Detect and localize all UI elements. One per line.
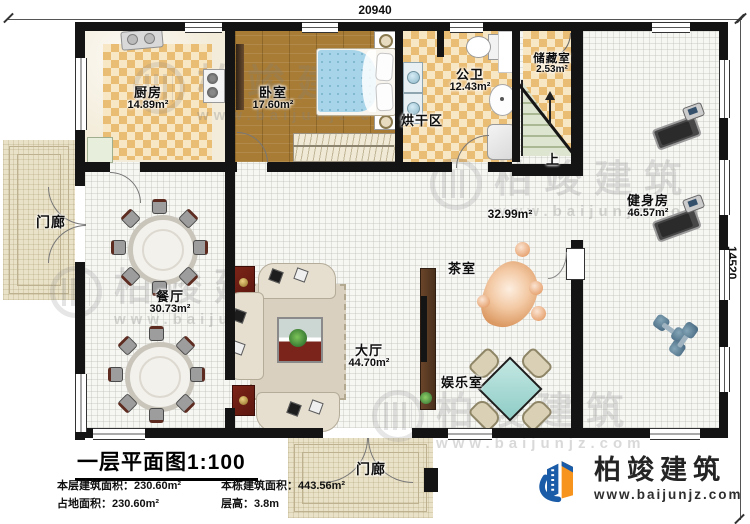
toilet-bowl xyxy=(466,36,491,58)
window xyxy=(652,22,690,33)
kitchen-sink-basin xyxy=(144,33,155,44)
wall-segment xyxy=(412,428,448,438)
bed-sheet-fold xyxy=(362,50,376,112)
stove-burner xyxy=(207,73,218,84)
right-dimension-line xyxy=(740,20,741,520)
bathroom-sink-drain xyxy=(500,97,504,101)
corridor-area-label: 32.99m² xyxy=(478,208,542,221)
wall-segment xyxy=(75,130,85,186)
room-name: 门廊 xyxy=(346,462,396,477)
room-name: 健身房 xyxy=(610,194,686,208)
window xyxy=(719,250,730,300)
nightstand-lamp xyxy=(379,34,393,48)
stairs-direction-line xyxy=(549,99,551,126)
floor-plan-canvas: 20940 14520 柏竣建筑 www.baijunjz.com 柏竣建筑 w… xyxy=(0,0,750,524)
room-label-kitchen: 厨房 14.89m² xyxy=(108,86,188,111)
wall-segment xyxy=(75,22,185,31)
window xyxy=(719,60,730,118)
stove-burner xyxy=(207,87,218,98)
tea-stool xyxy=(529,281,543,295)
room-name: 烘干区 xyxy=(394,114,450,128)
wall-segment xyxy=(225,172,235,380)
wall-segment xyxy=(719,22,728,60)
room-area: 14.89m² xyxy=(108,100,188,112)
room-area: 46.57m² xyxy=(610,208,686,220)
dining-chair xyxy=(149,326,164,341)
room-label-porch-bottom: 门廊 xyxy=(346,462,396,477)
room-name: 卧室 xyxy=(237,86,309,100)
room-area: 17.60m² xyxy=(237,100,309,112)
dining-chair xyxy=(111,240,126,255)
wall-segment xyxy=(719,118,728,160)
wall-segment xyxy=(75,262,85,374)
room-area: 44.70m² xyxy=(336,358,402,370)
window xyxy=(75,374,87,432)
room-area: 12.43m² xyxy=(433,82,507,94)
stat-storey-height: 层高：3.8m xyxy=(221,495,345,511)
stat-floor-area: 本层建筑面积：230.60m² xyxy=(57,477,207,493)
dining-chair xyxy=(108,367,123,382)
window xyxy=(450,22,483,33)
wardrobe xyxy=(293,133,396,162)
wardrobe-rail xyxy=(293,145,394,147)
wall-segment xyxy=(75,22,85,58)
kitchen-cabinet xyxy=(87,137,113,163)
tv-screen xyxy=(421,296,427,362)
top-dimension-line xyxy=(8,19,742,20)
wall-segment xyxy=(267,162,452,172)
window xyxy=(185,22,222,33)
window xyxy=(75,58,87,130)
room-name: 厨房 xyxy=(108,86,188,100)
stairs-direction-arrow xyxy=(545,91,555,100)
wall-segment xyxy=(512,31,520,162)
company-logo-text: 柏竣建筑 www.baijunjz.com xyxy=(594,457,743,502)
washing-machine xyxy=(403,62,423,93)
porch-pillar xyxy=(424,468,438,492)
tea-room-door xyxy=(566,248,585,280)
wall-segment xyxy=(719,392,728,438)
company-name: 柏竣建筑 xyxy=(594,457,743,484)
coffee-table-plant xyxy=(289,329,307,347)
wall-segment xyxy=(492,428,650,438)
dining-chair xyxy=(190,367,205,382)
nightstand-lamp xyxy=(379,115,393,129)
room-label-bathroom: 公卫 12.43m² xyxy=(433,68,507,93)
wall-segment xyxy=(140,162,237,172)
dining-chair xyxy=(152,199,167,214)
wall-segment xyxy=(488,162,512,172)
room-label-gym: 健身房 46.57m² xyxy=(610,194,686,219)
wall-segment xyxy=(222,22,302,31)
wall-segment xyxy=(719,300,728,347)
room-name: 大厅 xyxy=(336,344,402,358)
stairs-up-label: 上 xyxy=(542,153,564,167)
room-label-storage: 储藏室 2.53m² xyxy=(518,53,586,76)
stat-building-area: 本栋建筑面积：443.56m² xyxy=(221,477,345,493)
dining-chair xyxy=(193,240,208,255)
room-name: 公卫 xyxy=(433,68,507,82)
window xyxy=(448,428,492,440)
dining-set xyxy=(110,197,206,293)
room-label-game: 娱乐室 xyxy=(432,376,492,390)
window xyxy=(719,347,730,392)
tea-stool xyxy=(515,242,530,257)
wall-segment xyxy=(437,31,444,57)
top-dimension-label: 20940 xyxy=(333,3,417,17)
wall-segment xyxy=(483,22,652,31)
room-name: 门廊 xyxy=(26,215,76,230)
tea-stool xyxy=(477,295,490,308)
window xyxy=(93,428,145,440)
wall-segment xyxy=(225,408,235,428)
room-label-tea: 茶室 xyxy=(438,262,486,276)
wall-segment xyxy=(719,215,728,250)
dining-chair xyxy=(149,408,164,423)
window xyxy=(650,428,700,440)
plan-title: 一层平面图1:100 xyxy=(75,446,258,481)
pillow xyxy=(375,83,393,112)
room-name: 餐厅 xyxy=(136,290,204,304)
wall-segment xyxy=(75,162,110,172)
dimension-tick xyxy=(3,13,14,24)
room-name: 娱乐室 xyxy=(432,376,492,390)
room-label-drying: 烘干区 xyxy=(394,114,450,128)
company-website: www.baijunjz.com xyxy=(594,487,743,502)
room-area: 2.53m² xyxy=(518,65,586,76)
company-logo: 柏竣建筑 www.baijunjz.com xyxy=(534,452,743,506)
cabinet-plant xyxy=(420,392,432,404)
tea-stool xyxy=(531,306,546,321)
wall-segment xyxy=(225,31,235,162)
room-label-hall: 大厅 44.70m² xyxy=(336,344,402,369)
room-label-porch-left: 门廊 xyxy=(26,215,76,230)
window xyxy=(719,160,730,215)
stat-land-area: 占地面积：230.60m² xyxy=(57,495,207,511)
wall-segment xyxy=(338,22,450,31)
hall-red-cabinet xyxy=(232,385,255,416)
wall-segment xyxy=(145,428,323,438)
room-area: 32.99m² xyxy=(478,208,542,221)
dumbbell-bar xyxy=(661,322,679,336)
room-name: 上 xyxy=(542,153,564,167)
title-block: 一层平面图1:100 xyxy=(75,446,258,481)
window xyxy=(302,22,338,33)
dining-set xyxy=(107,324,203,420)
area-statistics: 本层建筑面积：230.60m² 本栋建筑面积：443.56m² 占地面积：230… xyxy=(57,477,345,511)
pillow xyxy=(375,52,394,81)
room-label-dining: 餐厅 30.73m² xyxy=(136,290,204,315)
room-area: 30.73m² xyxy=(136,304,204,316)
kitchen-sink-basin xyxy=(127,34,138,45)
wall-segment xyxy=(395,31,403,162)
company-logo-icon xyxy=(534,452,586,506)
room-label-bedroom: 卧室 17.60m² xyxy=(237,86,309,111)
room-name: 茶室 xyxy=(438,262,486,276)
